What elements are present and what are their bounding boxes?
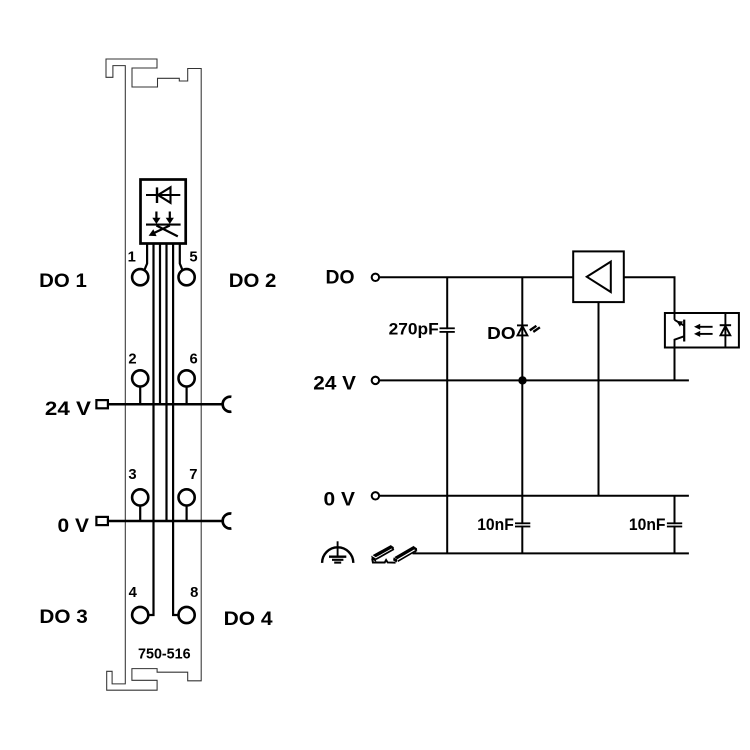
svg-text:DO 3: DO 3 — [39, 606, 88, 628]
svg-text:750-516: 750-516 — [138, 647, 191, 663]
svg-text:5: 5 — [189, 250, 197, 266]
svg-text:24 V: 24 V — [313, 372, 356, 394]
svg-text:6: 6 — [190, 352, 198, 368]
svg-text:10nF: 10nF — [477, 515, 514, 534]
svg-text:DO: DO — [487, 323, 515, 343]
svg-text:0 V: 0 V — [58, 515, 89, 537]
svg-text:DO 1: DO 1 — [39, 270, 87, 292]
svg-text:DO 2: DO 2 — [229, 270, 277, 292]
svg-text:4: 4 — [129, 585, 138, 601]
svg-text:24 V: 24 V — [45, 398, 91, 420]
svg-text:1: 1 — [128, 250, 136, 266]
svg-text:DO: DO — [326, 267, 355, 289]
svg-text:8: 8 — [190, 585, 198, 601]
svg-text:3: 3 — [128, 467, 136, 483]
svg-text:10nF: 10nF — [629, 515, 666, 534]
svg-text:2: 2 — [128, 352, 136, 368]
svg-text:DO 4: DO 4 — [224, 608, 273, 630]
svg-text:270pF: 270pF — [389, 320, 439, 339]
svg-text:0 V: 0 V — [324, 489, 355, 511]
svg-text:7: 7 — [189, 467, 197, 483]
